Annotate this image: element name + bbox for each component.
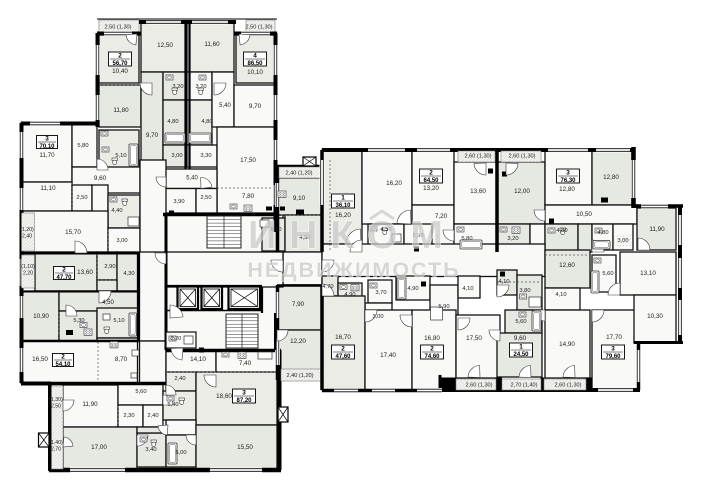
svg-text:4,10: 4,10 — [555, 292, 566, 298]
svg-text:9,10: 9,10 — [293, 195, 306, 202]
svg-text:13,20: 13,20 — [423, 185, 439, 192]
svg-text:3,20: 3,20 — [172, 84, 183, 90]
svg-text:5,80: 5,80 — [77, 143, 88, 149]
svg-text:17,70: 17,70 — [606, 334, 622, 341]
svg-text:15,50: 15,50 — [237, 444, 253, 451]
svg-text:3,70: 3,70 — [375, 290, 386, 296]
svg-text:2,60 (1,30): 2,60 (1,30) — [464, 154, 491, 160]
svg-text:2,40: 2,40 — [22, 234, 32, 240]
svg-text:5,60: 5,60 — [602, 271, 613, 277]
svg-text:56,70: 56,70 — [112, 61, 128, 67]
svg-text:4,70: 4,70 — [322, 284, 333, 290]
svg-text:5,90: 5,90 — [438, 304, 449, 310]
svg-text:4,10: 4,10 — [462, 286, 473, 292]
svg-text:3,00: 3,00 — [372, 314, 383, 320]
svg-text:5,30: 5,30 — [73, 318, 84, 324]
svg-text:1: 1 — [341, 195, 345, 202]
svg-text:3,80: 3,80 — [519, 288, 530, 294]
svg-text:2: 2 — [430, 346, 434, 353]
svg-text:4,90: 4,90 — [407, 286, 418, 292]
svg-text:2,40: 2,40 — [147, 413, 158, 419]
svg-text:5,80: 5,80 — [461, 236, 472, 242]
svg-text:4,80: 4,80 — [167, 119, 178, 125]
svg-text:79,60: 79,60 — [605, 354, 621, 360]
svg-text:17,50: 17,50 — [240, 157, 256, 164]
svg-text:7,80: 7,80 — [242, 193, 255, 200]
svg-text:3: 3 — [566, 170, 570, 177]
svg-text:2,50: 2,50 — [51, 404, 61, 410]
svg-text:2: 2 — [61, 354, 65, 361]
svg-text:2,40: 2,40 — [174, 376, 185, 382]
svg-text:2,60 (1,30): 2,60 (1,30) — [554, 383, 581, 389]
svg-text:9,60: 9,60 — [514, 335, 527, 342]
svg-text:17,40: 17,40 — [380, 352, 396, 359]
svg-text:5,10: 5,10 — [115, 153, 126, 159]
svg-text:9,70: 9,70 — [249, 103, 262, 110]
svg-text:9,70: 9,70 — [146, 132, 159, 139]
svg-text:70,10: 70,10 — [39, 144, 55, 150]
svg-text:12,00: 12,00 — [514, 188, 530, 195]
svg-text:17,50: 17,50 — [466, 335, 482, 342]
svg-text:11,90: 11,90 — [649, 226, 665, 233]
svg-text:18,60: 18,60 — [216, 393, 232, 400]
svg-text:3,20: 3,20 — [507, 236, 518, 242]
svg-text:24,50: 24,50 — [513, 352, 529, 358]
svg-text:12,50: 12,50 — [157, 42, 173, 49]
svg-text:5,40: 5,40 — [186, 176, 198, 182]
svg-text:(1,10): (1,10) — [21, 264, 35, 270]
svg-text:2,70: 2,70 — [51, 447, 61, 453]
svg-text:3,90: 3,90 — [173, 199, 184, 205]
svg-text:5,40: 5,40 — [167, 402, 178, 408]
svg-text:17,00: 17,00 — [91, 444, 107, 451]
svg-text:10,40: 10,40 — [112, 68, 128, 75]
svg-text:12,20: 12,20 — [290, 338, 306, 345]
svg-text:(1,30): (1,30) — [49, 397, 63, 403]
svg-text:4: 4 — [253, 53, 257, 60]
svg-text:87,20: 87,20 — [236, 398, 252, 404]
svg-text:4,80: 4,80 — [597, 230, 608, 236]
svg-text:5,40: 5,40 — [219, 103, 231, 109]
svg-text:2,50: 2,50 — [200, 195, 211, 201]
svg-text:4,80: 4,80 — [201, 119, 212, 125]
svg-text:2,70 (1,40): 2,70 (1,40) — [510, 383, 537, 389]
svg-text:10,10: 10,10 — [247, 69, 263, 76]
svg-text:4,90: 4,90 — [344, 292, 355, 298]
svg-text:4,50: 4,50 — [102, 300, 114, 306]
svg-text:3,30: 3,30 — [200, 153, 211, 159]
svg-text:14,10: 14,10 — [190, 356, 206, 363]
svg-text:11,80: 11,80 — [113, 107, 129, 114]
svg-text:3: 3 — [45, 136, 49, 143]
svg-text:64,50: 64,50 — [423, 178, 439, 184]
svg-text:1: 1 — [519, 344, 523, 351]
svg-text:3,00: 3,00 — [171, 153, 182, 159]
svg-text:(1,20): (1,20) — [20, 227, 34, 233]
svg-text:16,80: 16,80 — [424, 335, 440, 342]
svg-text:10,50: 10,50 — [576, 211, 592, 218]
svg-text:8,70: 8,70 — [115, 356, 128, 363]
svg-text:5,60: 5,60 — [135, 389, 146, 395]
svg-text:2: 2 — [341, 346, 345, 353]
svg-text:11,90: 11,90 — [82, 401, 98, 408]
svg-text:11,60: 11,60 — [204, 41, 220, 48]
svg-text:5,00: 5,00 — [175, 450, 186, 456]
svg-text:11,70: 11,70 — [39, 152, 55, 159]
svg-text:2,20: 2,20 — [23, 271, 33, 277]
svg-text:16,20: 16,20 — [386, 180, 402, 187]
svg-text:3,00: 3,00 — [116, 238, 127, 244]
svg-text:2,90: 2,90 — [104, 264, 115, 270]
svg-text:86,50: 86,50 — [247, 61, 263, 67]
svg-text:10,90: 10,90 — [33, 313, 49, 320]
svg-text:11,10: 11,10 — [40, 185, 56, 192]
svg-text:36,10: 36,10 — [335, 203, 351, 209]
svg-text:7,40: 7,40 — [239, 360, 252, 367]
svg-text:4,30: 4,30 — [123, 271, 134, 277]
svg-text:54,10: 54,10 — [55, 362, 71, 368]
svg-text:12,60: 12,60 — [559, 262, 575, 269]
svg-text:47,60: 47,60 — [335, 354, 351, 360]
svg-text:2: 2 — [62, 267, 66, 274]
svg-text:10,30: 10,30 — [647, 313, 663, 320]
svg-text:15,70: 15,70 — [65, 229, 81, 236]
svg-text:3: 3 — [611, 346, 615, 353]
svg-text:3,00: 3,00 — [617, 238, 628, 244]
svg-text:2,50: 2,50 — [76, 195, 87, 201]
svg-text:14,90: 14,90 — [559, 341, 575, 348]
svg-text:13,10: 13,10 — [640, 270, 656, 277]
svg-text:(1,40): (1,40) — [49, 440, 63, 446]
svg-text:2,60 (1,30): 2,60 (1,30) — [508, 154, 535, 160]
svg-text:47,70: 47,70 — [56, 275, 72, 281]
svg-text:74,60: 74,60 — [424, 354, 440, 360]
svg-text:16,50: 16,50 — [32, 356, 48, 363]
svg-text:12,80: 12,80 — [603, 174, 619, 181]
svg-text:9,60: 9,60 — [94, 175, 107, 182]
svg-text:4,40: 4,40 — [111, 208, 122, 214]
svg-text:2,40 (1,20): 2,40 (1,20) — [286, 373, 313, 379]
svg-text:2: 2 — [118, 53, 122, 60]
svg-text:13,60: 13,60 — [470, 188, 486, 195]
svg-text:3,20: 3,20 — [195, 84, 206, 90]
svg-text:2,50 (1,30): 2,50 (1,30) — [104, 25, 131, 31]
svg-text:16,70: 16,70 — [335, 334, 351, 341]
svg-text:12,80: 12,80 — [559, 186, 575, 193]
svg-text:2,60 (1,30): 2,60 (1,30) — [465, 383, 492, 389]
svg-text:4,80: 4,80 — [556, 228, 567, 234]
svg-text:3: 3 — [242, 390, 246, 397]
svg-text:3,40: 3,40 — [145, 447, 156, 453]
svg-text:5,60: 5,60 — [515, 319, 526, 325]
svg-text:2,50 (1,30): 2,50 (1,30) — [245, 25, 272, 31]
svg-text:НЕДВИЖИМОСТЬ: НЕДВИЖИМОСТЬ — [247, 258, 460, 282]
svg-text:2,30: 2,30 — [123, 413, 134, 419]
svg-text:7,90: 7,90 — [292, 301, 305, 308]
svg-text:ИНКОМ: ИНКОМ — [248, 214, 456, 257]
svg-text:4,10: 4,10 — [498, 279, 509, 285]
svg-text:13,60: 13,60 — [77, 269, 93, 276]
svg-text:2,40 (1,20): 2,40 (1,20) — [285, 171, 312, 177]
svg-text:76,30: 76,30 — [560, 178, 576, 184]
svg-text:2: 2 — [429, 170, 433, 177]
svg-text:2,20: 2,20 — [171, 336, 182, 342]
svg-text:5,10: 5,10 — [113, 318, 124, 324]
